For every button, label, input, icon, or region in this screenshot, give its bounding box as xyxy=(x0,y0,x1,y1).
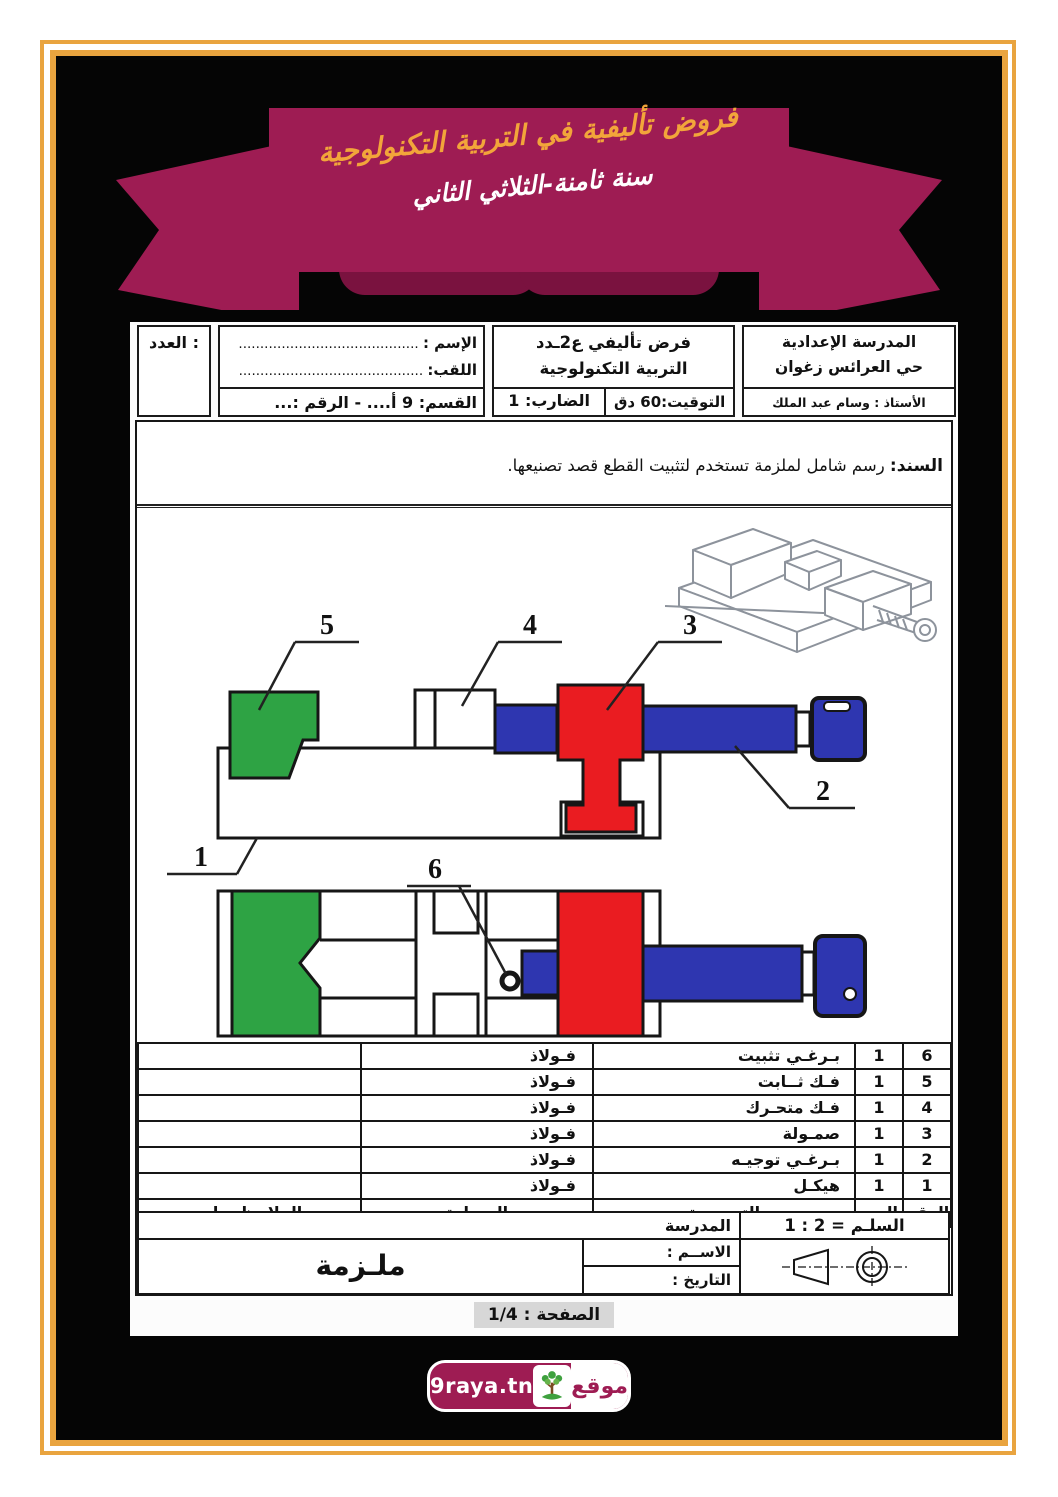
exam-timing: التوقيت:60 دق xyxy=(606,393,733,411)
table-cell: صمـولة xyxy=(593,1121,855,1147)
student-surname-line: اللقب: .................................… xyxy=(226,357,477,384)
support-statement: السند: رسم شامل لملزمة تستخدم لتثبيت الق… xyxy=(507,456,943,476)
support-label: السند: xyxy=(890,456,943,476)
part-label-5: 5 xyxy=(320,610,334,641)
table-cell: فـك ثــابت xyxy=(593,1069,855,1095)
table-cell: 1 xyxy=(855,1121,903,1147)
table-cell xyxy=(138,1043,361,1069)
tree-icon xyxy=(533,1365,571,1407)
school-name-2: حي العرائس زغوان xyxy=(750,355,948,380)
school-box: المدرسة الإعدادية حي العرائس زغوان الأست… xyxy=(742,325,956,417)
table-cell: 1 xyxy=(855,1095,903,1121)
grade-label: العدد : xyxy=(139,333,209,352)
table-cell: 6 xyxy=(903,1043,951,1069)
title-block: السلـم = 2 : 1 المدرسة الاســم : التاريخ… xyxy=(137,1211,950,1295)
exam-title-2: التربية التكنولوجية xyxy=(500,356,727,382)
site-word: موقع xyxy=(571,1363,628,1409)
scale-cell: السلـم = 2 : 1 xyxy=(739,1211,950,1240)
exam-coefficient: الضارب: 1 xyxy=(494,389,606,415)
table-cell: 1 xyxy=(855,1173,903,1199)
table-cell xyxy=(138,1069,361,1095)
table-cell: فـولاذ xyxy=(361,1095,593,1121)
exam-box: فرض تأليفي ع2ـدد التربية التكنولوجية الت… xyxy=(492,325,735,417)
first-angle-projection-icon xyxy=(780,1244,910,1290)
table-cell: 2 xyxy=(903,1147,951,1173)
name-cell: الاســم : xyxy=(582,1238,741,1267)
site-logo-badge[interactable]: 9raya.tn موقع xyxy=(427,1360,631,1412)
part-row: 21بـرغـي توجيـهفـولاذ xyxy=(138,1147,951,1173)
date-cell: التاريخ : xyxy=(582,1265,741,1295)
table-cell: فـولاذ xyxy=(361,1121,593,1147)
part-label-3: 3 xyxy=(683,610,697,641)
table-cell: 5 xyxy=(903,1069,951,1095)
part-row: 61بـرغـي تثبيتفـولاذ xyxy=(138,1043,951,1069)
page-number-text: الصفحة : 1/4 xyxy=(474,1302,614,1328)
school-name-1: المدرسة الإعدادية xyxy=(750,330,948,355)
table-cell: فـولاذ xyxy=(361,1147,593,1173)
table-cell xyxy=(138,1173,361,1199)
student-box: الإسم : ................................… xyxy=(218,325,485,417)
table-cell: فـولاذ xyxy=(361,1069,593,1095)
part-label-4: 4 xyxy=(523,610,537,641)
table-cell: فـك متحـرك xyxy=(593,1095,855,1121)
parts-table: 61بـرغـي تثبيتفـولاذ51فـك ثــابتفـولاذ41… xyxy=(137,1042,952,1228)
table-cell: هيكـل xyxy=(593,1173,855,1199)
exam-sheet-page: { "colors": { "frame_orange": "#E9A43F",… xyxy=(0,0,1058,1497)
table-cell xyxy=(138,1147,361,1173)
teacher-name: الأستاذ : وسام عبد الملك xyxy=(744,395,954,410)
student-name-line: الإسم : ................................… xyxy=(226,330,477,357)
grade-box: العدد : xyxy=(137,325,211,417)
part-label-6: 6 xyxy=(428,854,442,885)
table-cell: 1 xyxy=(855,1043,903,1069)
surname-dots: ........................................… xyxy=(239,363,424,379)
table-cell: فـولاذ xyxy=(361,1173,593,1199)
part-label-2: 2 xyxy=(816,776,830,807)
name-dots: ........................................… xyxy=(238,336,418,352)
table-cell xyxy=(138,1095,361,1121)
table-cell xyxy=(138,1121,361,1147)
table-cell: بـرغـي توجيـه xyxy=(593,1147,855,1173)
divider-line xyxy=(137,504,951,508)
table-cell: 1 xyxy=(855,1147,903,1173)
site-url: 9raya.tn xyxy=(430,1363,533,1409)
name-label: الإسم : xyxy=(423,334,477,352)
table-cell: 4 xyxy=(903,1095,951,1121)
drawing-title-cell: ملـزمة xyxy=(137,1238,584,1295)
part-row: 11هيكـلفـولاذ xyxy=(138,1173,951,1199)
exam-document: العدد : الإسم : ........................… xyxy=(130,322,958,1336)
projection-symbol-cell xyxy=(739,1238,950,1295)
part-row: 41فـك متحـركفـولاذ xyxy=(138,1095,951,1121)
school-cell: المدرسة xyxy=(137,1211,741,1240)
support-text: رسم شامل لملزمة تستخدم لتثبيت القطع قصد … xyxy=(507,456,884,475)
table-cell: 3 xyxy=(903,1121,951,1147)
surname-label: اللقب: xyxy=(427,361,477,379)
class-line: القسم: 9 أ.... - الرقم :... xyxy=(220,393,483,412)
table-cell: بـرغـي تثبيت xyxy=(593,1043,855,1069)
table-cell: فـولاذ xyxy=(361,1043,593,1069)
plan-view-drawing: 6 xyxy=(137,846,951,1046)
part-row: 31صمـولةفـولاذ xyxy=(138,1121,951,1147)
drawing-frame: السند: رسم شامل لملزمة تستخدم لتثبيت الق… xyxy=(135,420,953,1296)
table-cell: 1 xyxy=(903,1173,951,1199)
table-cell: 1 xyxy=(855,1069,903,1095)
side-view-drawing: 5 4 3 2 1 xyxy=(137,588,951,880)
part-row: 51فـك ثــابتفـولاذ xyxy=(138,1069,951,1095)
exam-title-1: فرض تأليفي ع2ـدد xyxy=(500,330,727,356)
page-number: الصفحة : 1/4 xyxy=(130,1302,958,1328)
